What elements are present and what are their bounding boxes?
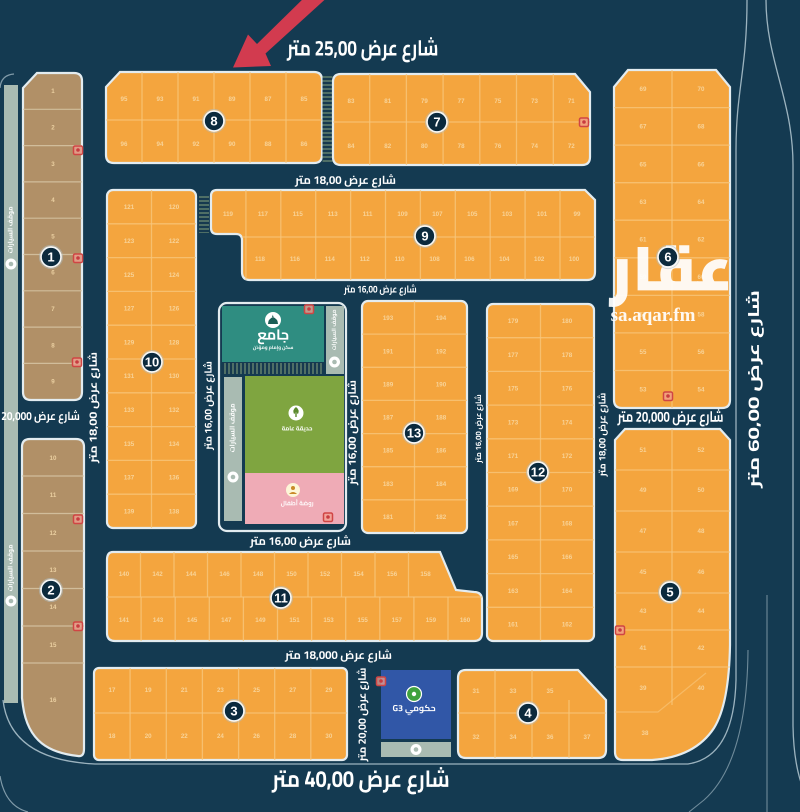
svg-text:21: 21 (181, 687, 188, 694)
svg-text:108: 108 (429, 256, 440, 263)
svg-text:10: 10 (145, 354, 159, 369)
svg-text:103: 103 (502, 211, 513, 218)
svg-text:20: 20 (145, 733, 152, 740)
svg-text:189: 189 (383, 381, 394, 388)
svg-text:170: 170 (562, 487, 573, 494)
svg-text:193: 193 (383, 315, 394, 322)
svg-text:6: 6 (51, 270, 55, 277)
svg-text:92: 92 (193, 141, 200, 148)
svg-text:30: 30 (325, 733, 332, 740)
svg-text:161: 161 (508, 622, 519, 629)
svg-text:27: 27 (289, 687, 296, 694)
svg-text:156: 156 (387, 571, 398, 578)
svg-text:110: 110 (395, 256, 406, 263)
svg-text:182: 182 (436, 514, 447, 521)
svg-text:5: 5 (666, 584, 673, 599)
svg-text:61: 61 (640, 236, 647, 243)
svg-text:62: 62 (698, 236, 705, 243)
svg-text:118: 118 (255, 256, 266, 263)
svg-text:131: 131 (124, 373, 135, 380)
svg-text:64: 64 (698, 199, 705, 206)
svg-text:158: 158 (420, 571, 431, 578)
svg-text:46: 46 (698, 569, 705, 576)
svg-text:53: 53 (640, 387, 647, 394)
svg-text:111: 111 (363, 211, 373, 218)
svg-text:120: 120 (169, 204, 180, 211)
svg-text:159: 159 (426, 617, 437, 624)
svg-text:181: 181 (383, 514, 394, 521)
svg-text:148: 148 (253, 571, 264, 578)
svg-text:167: 167 (508, 520, 519, 527)
svg-text:8: 8 (210, 113, 217, 128)
svg-text:186: 186 (436, 448, 447, 455)
svg-text:126: 126 (169, 306, 180, 313)
svg-text:132: 132 (169, 407, 180, 414)
svg-text:116: 116 (290, 256, 301, 263)
svg-text:90: 90 (229, 141, 236, 148)
svg-text:3: 3 (230, 703, 237, 718)
svg-text:112: 112 (360, 256, 371, 263)
svg-text:133: 133 (124, 407, 135, 414)
svg-text:142: 142 (152, 571, 163, 578)
svg-text:3: 3 (51, 161, 55, 168)
svg-text:151: 151 (289, 617, 300, 624)
svg-text:9: 9 (51, 379, 55, 386)
svg-text:176: 176 (562, 386, 573, 393)
svg-text:49: 49 (640, 487, 647, 494)
svg-text:48: 48 (698, 528, 705, 535)
svg-text:1: 1 (51, 88, 55, 95)
svg-text:96: 96 (121, 141, 128, 148)
svg-text:164: 164 (562, 588, 573, 595)
svg-text:sa.aqar.fm: sa.aqar.fm (611, 305, 696, 326)
svg-text:141: 141 (119, 617, 130, 624)
svg-text:99: 99 (574, 211, 581, 218)
svg-text:80: 80 (421, 143, 428, 150)
svg-text:177: 177 (508, 352, 519, 359)
svg-text:65: 65 (640, 161, 647, 168)
svg-text:169: 169 (508, 487, 519, 494)
svg-text:70: 70 (698, 86, 705, 93)
svg-text:122: 122 (169, 238, 180, 245)
svg-text:127: 127 (124, 306, 135, 313)
svg-text:145: 145 (187, 617, 198, 624)
svg-text:10: 10 (50, 455, 57, 462)
svg-text:163: 163 (508, 588, 519, 595)
svg-text:146: 146 (219, 571, 230, 578)
svg-text:87: 87 (265, 96, 272, 103)
svg-text:39: 39 (640, 685, 647, 692)
svg-text:144: 144 (186, 571, 197, 578)
svg-text:34: 34 (510, 734, 517, 741)
svg-text:7: 7 (433, 114, 440, 129)
svg-text:1: 1 (47, 249, 54, 264)
svg-text:56: 56 (698, 349, 705, 356)
svg-text:184: 184 (436, 481, 447, 488)
svg-text:24: 24 (217, 733, 224, 740)
svg-text:14: 14 (50, 604, 57, 611)
svg-text:123: 123 (124, 238, 135, 245)
svg-text:4: 4 (524, 705, 532, 720)
svg-text:93: 93 (157, 96, 164, 103)
svg-text:5: 5 (51, 233, 55, 240)
svg-text:119: 119 (223, 211, 234, 218)
svg-text:179: 179 (508, 318, 519, 325)
svg-text:68: 68 (698, 124, 705, 131)
svg-text:55: 55 (640, 349, 647, 356)
svg-text:78: 78 (458, 143, 465, 150)
svg-text:42: 42 (698, 645, 705, 652)
svg-text:100: 100 (569, 256, 580, 263)
svg-text:143: 143 (153, 617, 164, 624)
svg-text:28: 28 (289, 733, 296, 740)
svg-text:32: 32 (473, 734, 480, 741)
svg-text:12: 12 (50, 530, 57, 537)
svg-text:130: 130 (169, 373, 180, 380)
svg-text:19: 19 (145, 687, 152, 694)
svg-text:13: 13 (50, 567, 57, 574)
svg-text:36: 36 (547, 734, 554, 741)
svg-text:194: 194 (436, 315, 447, 322)
svg-text:73: 73 (531, 98, 538, 105)
svg-text:113: 113 (328, 211, 339, 218)
svg-text:51: 51 (640, 447, 647, 454)
svg-text:136: 136 (169, 475, 180, 482)
svg-text:134: 134 (169, 441, 180, 448)
svg-text:41: 41 (640, 645, 647, 652)
svg-text:172: 172 (562, 453, 573, 460)
svg-text:23: 23 (217, 687, 224, 694)
svg-text:138: 138 (169, 508, 180, 515)
svg-text:74: 74 (531, 143, 538, 150)
svg-text:72: 72 (568, 143, 575, 150)
svg-text:124: 124 (169, 272, 180, 279)
svg-text:168: 168 (562, 520, 573, 527)
svg-text:88: 88 (265, 141, 272, 148)
svg-text:102: 102 (534, 256, 545, 263)
svg-text:153: 153 (323, 617, 334, 624)
svg-text:15: 15 (50, 642, 57, 649)
svg-text:109: 109 (397, 211, 408, 218)
svg-text:11: 11 (50, 492, 57, 499)
svg-text:94: 94 (157, 141, 164, 148)
svg-text:43: 43 (640, 608, 647, 615)
svg-text:185: 185 (383, 448, 394, 455)
svg-text:173: 173 (508, 419, 519, 426)
svg-text:38: 38 (642, 730, 649, 737)
svg-text:192: 192 (436, 348, 447, 355)
svg-text:101: 101 (537, 211, 548, 218)
svg-text:47: 47 (640, 528, 647, 535)
svg-text:84: 84 (348, 143, 355, 150)
svg-text:128: 128 (169, 339, 180, 346)
svg-text:165: 165 (508, 554, 519, 561)
svg-text:45: 45 (640, 569, 647, 576)
svg-text:106: 106 (464, 256, 475, 263)
svg-text:13: 13 (407, 425, 421, 440)
svg-text:2: 2 (47, 582, 54, 597)
svg-text:121: 121 (124, 204, 135, 211)
svg-text:7: 7 (51, 306, 55, 313)
svg-text:91: 91 (193, 96, 200, 103)
svg-text:52: 52 (698, 447, 705, 454)
svg-text:26: 26 (253, 733, 260, 740)
svg-text:114: 114 (325, 256, 336, 263)
svg-text:187: 187 (383, 415, 394, 422)
svg-text:75: 75 (494, 98, 501, 105)
svg-text:166: 166 (562, 554, 573, 561)
svg-text:35: 35 (547, 688, 554, 695)
svg-text:18: 18 (109, 733, 116, 740)
svg-text:175: 175 (508, 386, 519, 393)
svg-text:171: 171 (508, 453, 519, 460)
svg-text:140: 140 (119, 571, 130, 578)
svg-text:174: 174 (562, 419, 573, 426)
svg-text:50: 50 (698, 487, 705, 494)
svg-text:190: 190 (436, 381, 447, 388)
svg-text:9: 9 (421, 228, 428, 243)
svg-text:33: 33 (510, 688, 517, 695)
svg-text:29: 29 (325, 687, 332, 694)
svg-text:180: 180 (562, 318, 573, 325)
svg-text:2: 2 (51, 125, 55, 132)
svg-text:117: 117 (258, 211, 269, 218)
svg-text:129: 129 (124, 339, 135, 346)
svg-text:107: 107 (432, 211, 443, 218)
svg-text:178: 178 (562, 352, 573, 359)
svg-text:58: 58 (698, 312, 705, 319)
svg-text:54: 54 (698, 387, 705, 394)
svg-text:81: 81 (384, 98, 391, 105)
svg-text:79: 79 (421, 98, 428, 105)
svg-text:25: 25 (253, 687, 260, 694)
svg-text:8: 8 (51, 342, 55, 349)
svg-text:86: 86 (301, 141, 308, 148)
svg-text:115: 115 (293, 211, 304, 218)
svg-text:31: 31 (473, 688, 480, 695)
svg-text:105: 105 (467, 211, 478, 218)
svg-text:95: 95 (121, 96, 128, 103)
svg-text:149: 149 (255, 617, 266, 624)
svg-text:63: 63 (640, 199, 647, 206)
svg-text:85: 85 (301, 96, 308, 103)
svg-text:155: 155 (358, 617, 369, 624)
svg-text:154: 154 (353, 571, 364, 578)
svg-text:67: 67 (640, 124, 647, 131)
svg-text:71: 71 (568, 98, 575, 105)
svg-text:69: 69 (640, 86, 647, 93)
svg-text:17: 17 (109, 687, 116, 694)
svg-text:104: 104 (499, 256, 510, 263)
svg-text:183: 183 (383, 481, 394, 488)
svg-text:157: 157 (392, 617, 403, 624)
svg-text:147: 147 (221, 617, 232, 624)
svg-text:82: 82 (384, 143, 391, 150)
svg-text:150: 150 (286, 571, 297, 578)
svg-text:137: 137 (124, 475, 135, 482)
svg-text:4: 4 (51, 197, 55, 204)
svg-text:139: 139 (124, 508, 135, 515)
svg-text:89: 89 (229, 96, 236, 103)
svg-text:76: 76 (494, 143, 501, 150)
svg-text:66: 66 (698, 161, 705, 168)
svg-text:191: 191 (383, 348, 394, 355)
svg-text:22: 22 (181, 733, 188, 740)
svg-text:6: 6 (664, 249, 671, 264)
svg-text:125: 125 (124, 272, 135, 279)
svg-text:11: 11 (274, 590, 288, 605)
svg-text:188: 188 (436, 415, 447, 422)
svg-text:12: 12 (531, 464, 545, 479)
svg-text:44: 44 (698, 608, 705, 615)
svg-text:77: 77 (458, 98, 465, 105)
svg-text:83: 83 (348, 98, 355, 105)
svg-text:40: 40 (698, 685, 705, 692)
svg-text:16: 16 (50, 697, 57, 704)
svg-text:162: 162 (562, 622, 573, 629)
svg-text:152: 152 (320, 571, 331, 578)
svg-text:160: 160 (460, 617, 471, 624)
svg-text:37: 37 (584, 734, 591, 741)
svg-text:135: 135 (124, 441, 135, 448)
